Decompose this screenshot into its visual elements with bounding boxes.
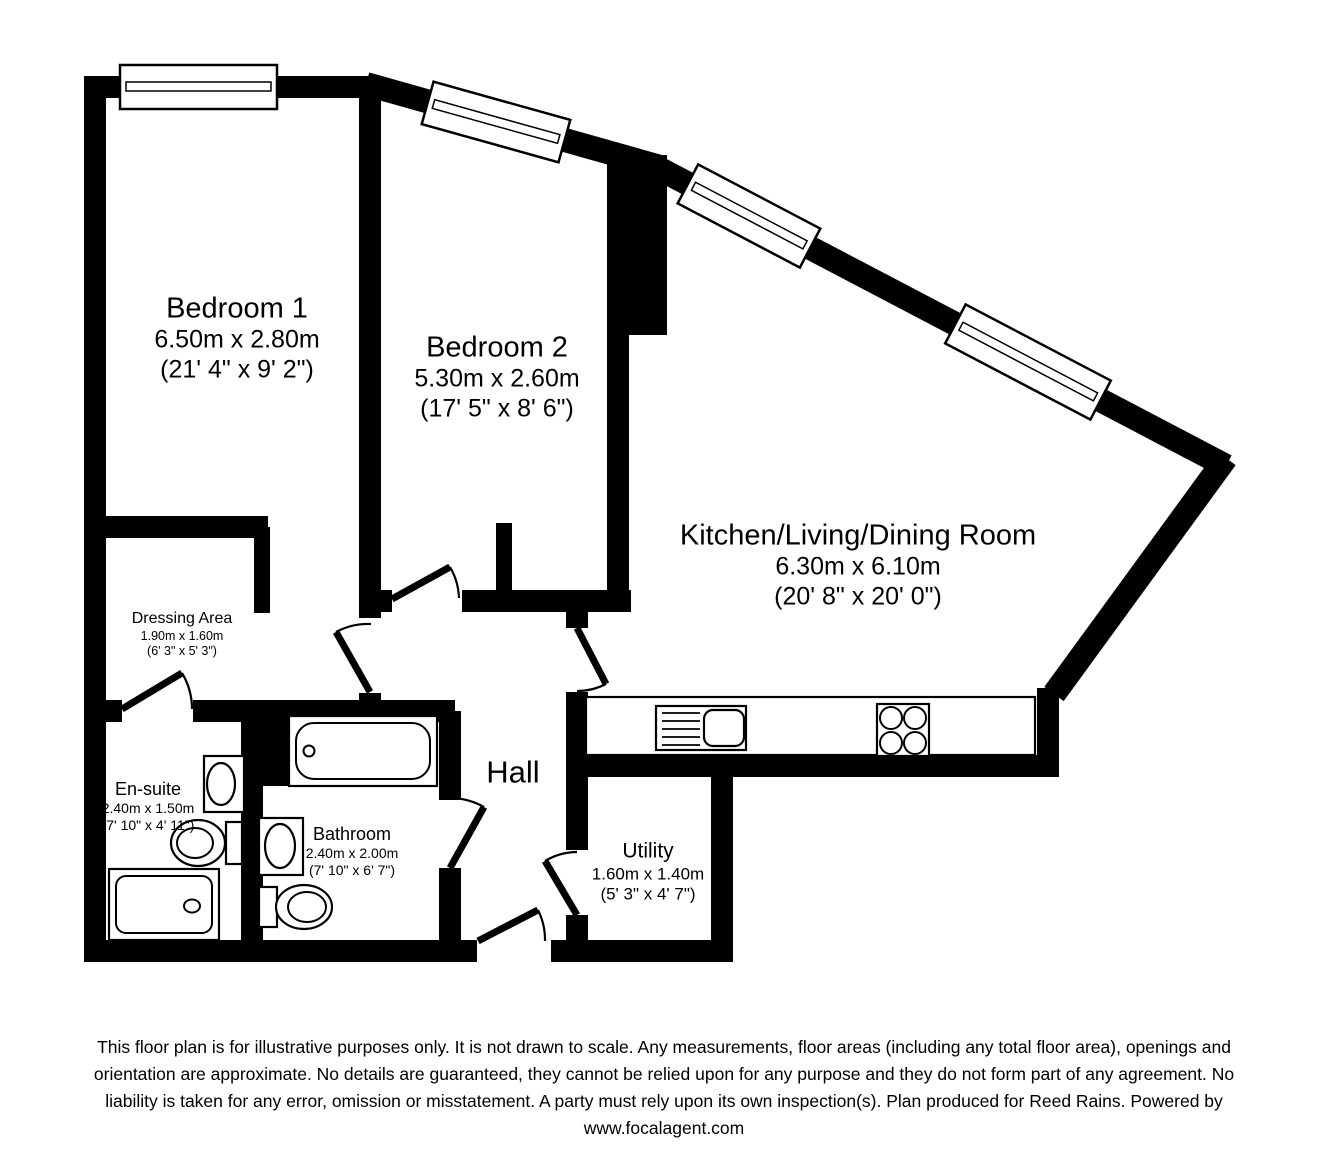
floorplan-drawing xyxy=(0,0,1328,1151)
room-metric: 2.40m x 1.50m xyxy=(102,800,195,817)
wall-diagonal-kitchen-right xyxy=(1054,458,1226,694)
ensuite-label: En-suite 2.40m x 1.50m (7' 10" x 4' 11") xyxy=(102,779,195,833)
room-name: Bathroom xyxy=(306,824,399,845)
bedroom2-label: Bedroom 2 5.30m x 2.60m (17' 5" x 8' 6") xyxy=(414,330,579,423)
room-imperial: (17' 5" x 8' 6") xyxy=(414,394,579,424)
door-swing-icon xyxy=(336,624,371,692)
room-metric: 6.30m x 6.10m xyxy=(680,553,1036,583)
room-name: En-suite xyxy=(102,779,195,800)
kitchen-sink-icon xyxy=(656,706,746,750)
door-swing-icon xyxy=(577,628,606,691)
room-metric: 6.50m x 2.80m xyxy=(154,326,319,356)
room-imperial: (5' 3" x 4' 7") xyxy=(592,884,704,904)
utility-label: Utility 1.60m x 1.40m (5' 3" x 4' 7") xyxy=(592,840,704,905)
hall-label: Hall xyxy=(486,755,539,792)
window-icon xyxy=(120,65,277,109)
door-swing-icon xyxy=(478,910,545,941)
room-name: Bedroom 2 xyxy=(414,330,579,364)
bathroom-label: Bathroom 2.40m x 2.00m (7' 10" x 6' 7") xyxy=(306,824,399,878)
hob-icon xyxy=(877,704,929,756)
disclaimer-line: This floor plan is for illustrative purp… xyxy=(14,1034,1314,1061)
room-metric: 1.90m x 1.60m xyxy=(132,629,233,644)
room-imperial: (6' 3" x 5' 3") xyxy=(132,643,233,658)
room-name: Bedroom 1 xyxy=(154,291,319,325)
kitchen-label: Kitchen/Living/Dining Room 6.30m x 6.10m… xyxy=(680,518,1036,611)
disclaimer-text: This floor plan is for illustrative purp… xyxy=(14,1034,1314,1142)
disclaimer-line: liability is taken for any error, omissi… xyxy=(14,1088,1314,1115)
door-swing-icon xyxy=(450,798,484,868)
disclaimer-line: www.focalagent.com xyxy=(14,1115,1314,1142)
wall-column-bedroom2-corner xyxy=(607,155,667,335)
window-icon xyxy=(945,304,1111,419)
bathtub-icon xyxy=(289,716,437,786)
sink-icon xyxy=(204,756,244,812)
sink-icon xyxy=(259,818,303,875)
door-swing-icon xyxy=(122,673,192,709)
room-imperial: (20' 8" x 20' 0") xyxy=(680,582,1036,612)
shower-icon xyxy=(109,869,219,940)
disclaimer-line: orientation are approximate. No details … xyxy=(14,1061,1314,1088)
room-name: Dressing Area xyxy=(132,610,233,629)
window-icon xyxy=(422,82,571,163)
bedroom1-label: Bedroom 1 6.50m x 2.80m (21' 4" x 9' 2") xyxy=(154,291,319,384)
counter-worktop xyxy=(586,697,1035,755)
room-metric: 5.30m x 2.60m xyxy=(414,365,579,395)
dressing-area-label: Dressing Area 1.90m x 1.60m (6' 3" x 5' … xyxy=(132,610,233,658)
room-imperial: (7' 10" x 4' 11") xyxy=(102,817,195,834)
door-swing-icon xyxy=(392,567,459,599)
kitchen-counter xyxy=(586,697,1035,756)
room-metric: 2.40m x 2.00m xyxy=(306,845,399,862)
toilet-icon xyxy=(259,885,332,929)
room-name: Hall xyxy=(486,755,539,792)
room-metric: 1.60m x 1.40m xyxy=(592,864,704,884)
room-name: Utility xyxy=(592,840,704,865)
room-imperial: (7' 10" x 6' 7") xyxy=(306,862,399,879)
window-icon xyxy=(678,164,821,267)
room-name: Kitchen/Living/Dining Room xyxy=(680,518,1036,552)
floorplan-page: Bedroom 1 6.50m x 2.80m (21' 4" x 9' 2")… xyxy=(0,0,1328,1151)
door-swing-icon xyxy=(545,852,577,915)
room-imperial: (21' 4" x 9' 2") xyxy=(154,355,319,385)
